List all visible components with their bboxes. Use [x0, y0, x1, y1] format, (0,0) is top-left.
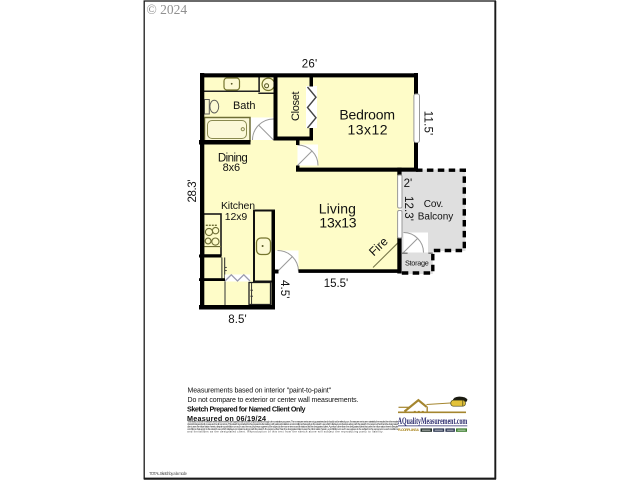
svg-text:13x13: 13x13 — [319, 214, 356, 230]
svg-text:TOTAL Sketch by a la mode: TOTAL Sketch by a la mode — [149, 471, 188, 476]
svg-text:11.5': 11.5' — [422, 111, 434, 136]
svg-text:Bath: Bath — [233, 100, 256, 112]
svg-text:Do not compare to exterior or: Do not compare to exterior or center wal… — [188, 397, 359, 404]
svg-text:8x6: 8x6 — [223, 162, 241, 174]
svg-text:and limitations as the designa: and limitations as the designated client… — [187, 430, 383, 434]
svg-text:8.5': 8.5' — [228, 314, 247, 326]
svg-text:FLOOR PLANS &: FLOOR PLANS & — [398, 428, 419, 432]
svg-text:26': 26' — [302, 59, 318, 71]
svg-text:4.5': 4.5' — [278, 280, 290, 299]
svg-text:Storage: Storage — [405, 259, 429, 268]
svg-text:Sketch Prepared for Named Clie: Sketch Prepared for Named Client Only — [187, 404, 306, 413]
svg-text:12.3': 12.3' — [402, 196, 414, 221]
svg-text:Bedroom: Bedroom — [339, 107, 395, 123]
svg-text:12x9: 12x9 — [225, 211, 248, 223]
svg-text:Kitchen: Kitchen — [221, 200, 255, 212]
svg-text:Closet: Closet — [290, 91, 302, 121]
svg-text:2': 2' — [404, 178, 413, 190]
svg-text:Measurements based on interior: Measurements based on interior "paint-to… — [188, 388, 332, 395]
svg-text:Cov.: Cov. — [424, 199, 444, 210]
svg-text:15.5': 15.5' — [324, 278, 349, 290]
svg-text:28.3': 28.3' — [187, 180, 199, 203]
svg-text:Balcony: Balcony — [418, 212, 454, 223]
svg-text:13x12: 13x12 — [348, 122, 388, 138]
svg-text:© 2024: © 2024 — [147, 2, 188, 17]
svg-text:AQualityMeasurement.com: AQualityMeasurement.com — [398, 417, 468, 427]
